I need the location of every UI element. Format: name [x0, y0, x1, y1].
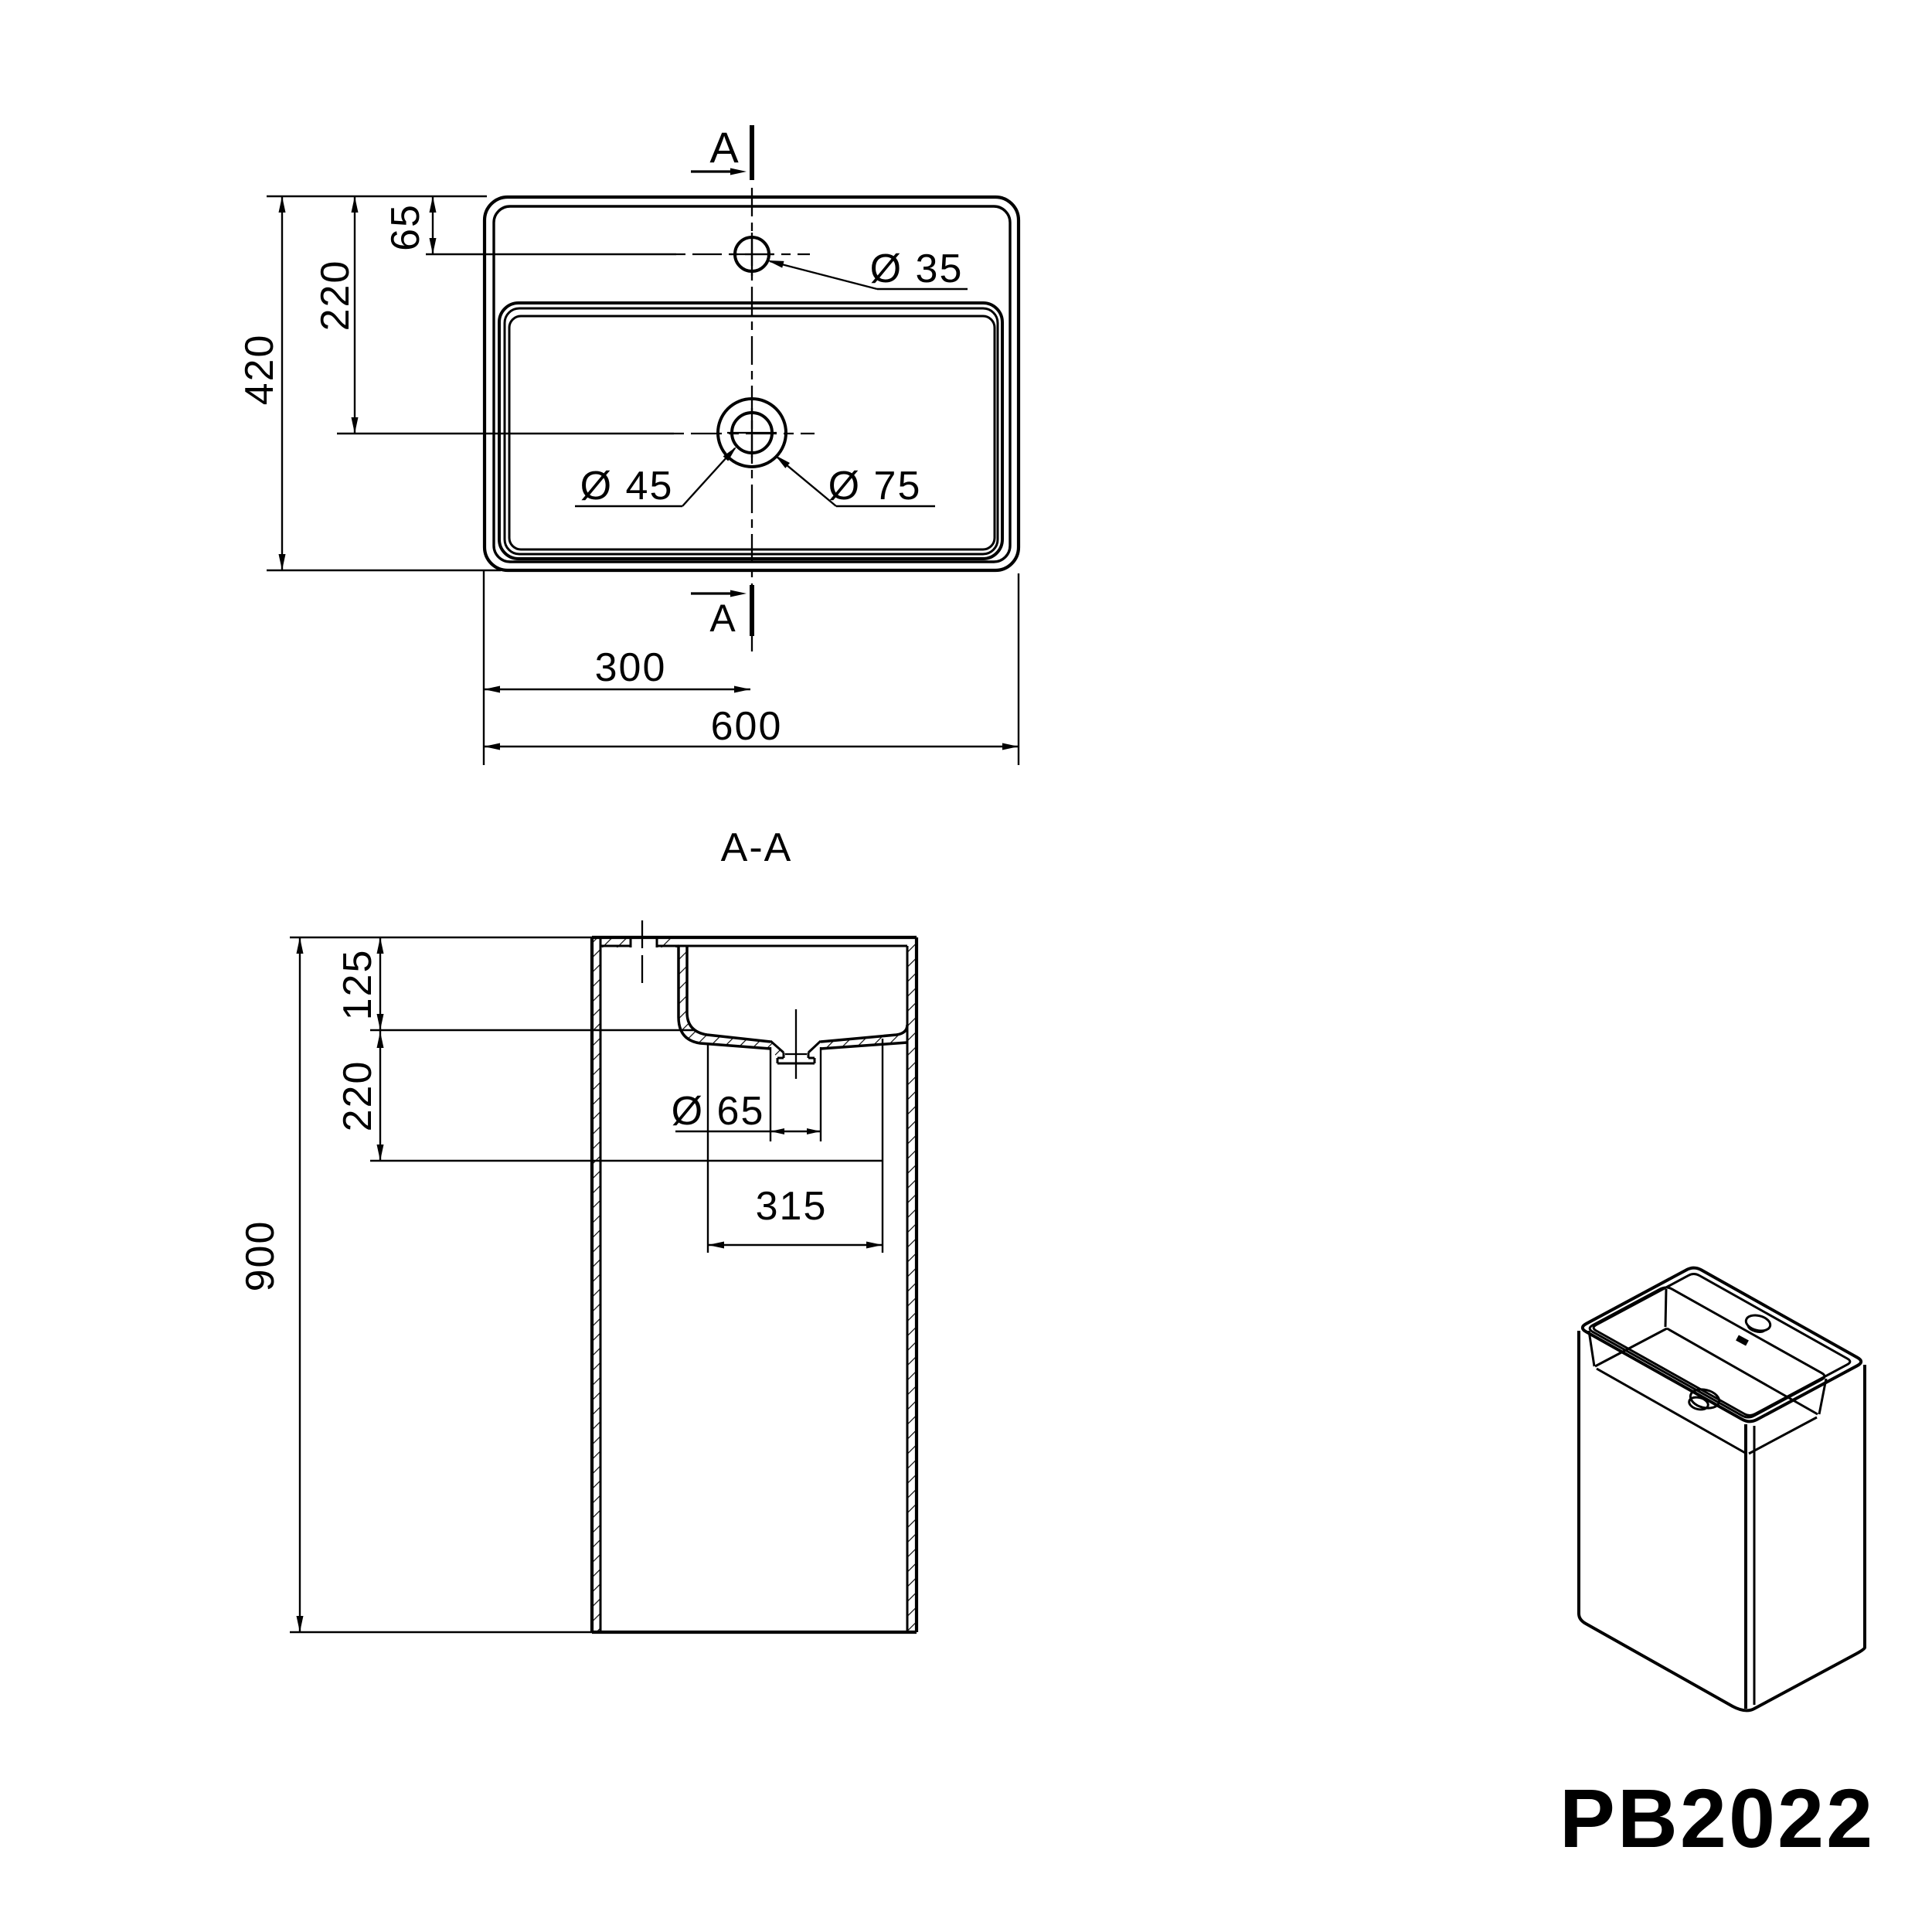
svg-text:Ø 35: Ø 35	[870, 247, 964, 291]
svg-text:Ø 45: Ø 45	[580, 464, 674, 509]
svg-text:PB2022: PB2022	[1560, 1771, 1875, 1865]
svg-text:600: 600	[711, 704, 783, 749]
svg-text:900: 900	[238, 1220, 283, 1292]
svg-text:Ø 65: Ø 65	[672, 1089, 765, 1134]
svg-text:300: 300	[595, 645, 667, 690]
svg-text:220: 220	[313, 260, 358, 332]
svg-text:A: A	[709, 123, 740, 172]
svg-text:220: 220	[335, 1060, 380, 1132]
svg-text:Ø 75: Ø 75	[828, 464, 922, 509]
svg-text:315: 315	[756, 1184, 828, 1229]
svg-text:A-A: A-A	[721, 825, 793, 870]
svg-text:A: A	[709, 597, 736, 640]
svg-text:125: 125	[335, 949, 380, 1021]
svg-text:420: 420	[237, 334, 282, 406]
svg-text:65: 65	[383, 203, 428, 251]
